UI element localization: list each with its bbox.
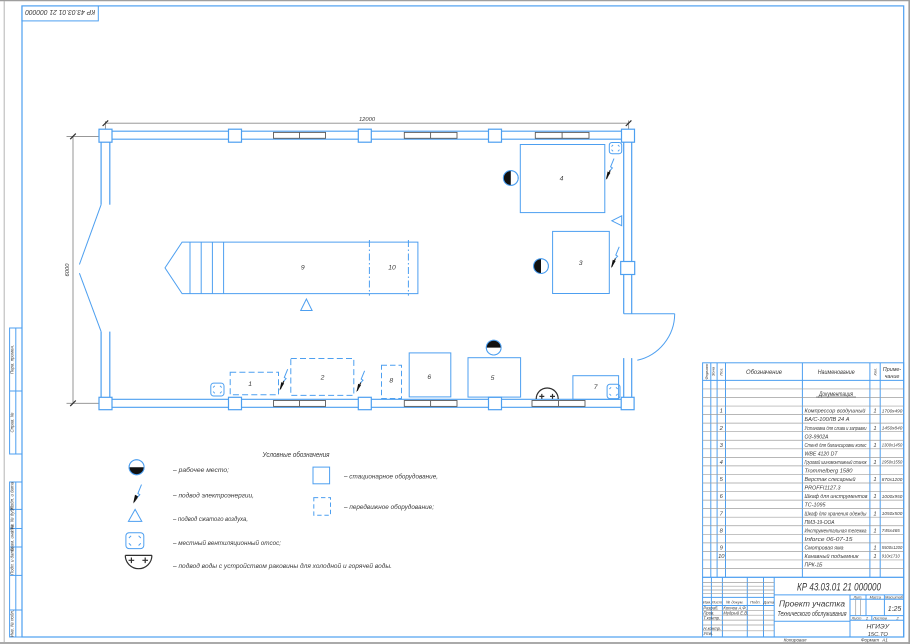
svg-text:10: 10 xyxy=(718,554,725,560)
svg-text:1: 1 xyxy=(873,554,876,560)
svg-text:Копировал: Копировал xyxy=(784,638,807,643)
svg-text:Справ. №: Справ. № xyxy=(10,412,15,432)
svg-text:Формат: Формат xyxy=(704,363,709,380)
svg-text:– подвод воды с устройством ра: – подвод воды с устройством раковины для… xyxy=(172,562,392,570)
svg-text:Канавный подъемник: Канавный подъемник xyxy=(805,553,859,560)
svg-text:КР 43.03.01 21 000000: КР 43.03.01 21 000000 xyxy=(24,8,95,17)
svg-text:Шкаф для инструментов: Шкаф для инструментов xyxy=(805,494,868,500)
svg-text:1: 1 xyxy=(873,409,876,415)
svg-text:КР 43.03.01 21 000000: КР 43.03.01 21 000000 xyxy=(797,582,881,594)
svg-text:Перв. примен.: Перв. примен. xyxy=(10,345,15,374)
svg-text:Инв. № подл.: Инв. № подл. xyxy=(10,610,15,637)
svg-text:Мудрый Е.В.: Мудрый Е.В. xyxy=(723,610,748,615)
svg-text:1: 1 xyxy=(873,528,876,534)
svg-text:Trommelberg 1580: Trommelberg 1580 xyxy=(805,469,854,475)
svg-text:Лист: Лист xyxy=(711,600,723,605)
svg-text:WBE 4120 DT: WBE 4120 DT xyxy=(805,451,838,457)
svg-text:1300х1450: 1300х1450 xyxy=(882,443,903,449)
svg-text:1: 1 xyxy=(873,511,876,517)
svg-text:Условные обозначения: Условные обозначения xyxy=(262,450,330,459)
svg-text:ПРК-1Б: ПРК-1Б xyxy=(805,563,823,569)
svg-text:10: 10 xyxy=(388,264,396,271)
svg-text:Компрессор воздушный: Компрессор воздушный xyxy=(805,408,867,415)
svg-text:9: 9 xyxy=(301,264,305,271)
svg-text:1: 1 xyxy=(873,443,876,449)
svg-text:Масса: Масса xyxy=(870,595,881,599)
svg-text:1: 1 xyxy=(873,426,876,432)
svg-text:4: 4 xyxy=(560,176,564,183)
svg-text:5: 5 xyxy=(491,375,495,382)
svg-text:Кол.: Кол. xyxy=(872,368,877,376)
svg-text:Подп. и дата: Подп. и дата xyxy=(10,547,15,575)
svg-text:– подвод сжатого воздуха,: – подвод сжатого воздуха, xyxy=(172,515,248,523)
svg-text:А1: А1 xyxy=(881,638,888,643)
svg-text:Верстак слесарный: Верстак слесарный xyxy=(805,476,857,483)
svg-text:Лит.: Лит. xyxy=(853,595,863,599)
svg-text:– подвод электроэнергии,: – подвод электроэнергии, xyxy=(172,491,254,499)
svg-text:Стенд для балансировки колес: Стенд для балансировки колес xyxy=(805,443,867,449)
svg-text:Формат: Формат xyxy=(861,638,879,643)
svg-text:– передвижное оборудование;: – передвижное оборудование; xyxy=(343,503,434,511)
svg-text:Изм.: Изм. xyxy=(703,600,712,605)
svg-text:Утв.: Утв. xyxy=(703,631,713,636)
svg-text:БА/С-100ЛВ 24 А: БА/С-100ЛВ 24 А xyxy=(805,417,850,423)
svg-text:ТС-1095: ТС-1095 xyxy=(805,503,827,509)
svg-text:Взам. инв. №: Взам. инв. № xyxy=(10,524,15,551)
svg-text:6000: 6000 xyxy=(65,263,71,277)
svg-text:1050х500: 1050х500 xyxy=(882,511,903,517)
svg-text:5500х1200: 5500х1200 xyxy=(882,545,903,551)
svg-text:1: 1 xyxy=(873,494,876,500)
svg-text:1: 1 xyxy=(873,546,876,552)
svg-text:1950х1550: 1950х1550 xyxy=(882,460,903,466)
svg-text:Грузовой шиномонтажный станок: Грузовой шиномонтажный станок xyxy=(805,459,867,466)
svg-text:Зона: Зона xyxy=(711,366,716,376)
svg-text:7: 7 xyxy=(594,384,598,391)
svg-text:Шкаф для хранения одежды: Шкаф для хранения одежды xyxy=(805,511,868,517)
svg-text:– рабочее место;: – рабочее место; xyxy=(172,466,229,474)
svg-text:НГИЭУ: НГИЭУ xyxy=(867,624,890,631)
svg-text:8: 8 xyxy=(389,378,393,385)
svg-text:Лист: Лист xyxy=(851,616,862,620)
svg-text:чание: чание xyxy=(885,374,900,380)
svg-text:Масштаб: Масштаб xyxy=(885,595,904,599)
svg-text:– стационарное оборудование,: – стационарное оборудование, xyxy=(343,472,438,480)
svg-text:Технического обслуживания: Технического обслуживания xyxy=(778,610,847,618)
svg-text:1: 1 xyxy=(248,381,252,388)
svg-text:1000х950: 1000х950 xyxy=(882,494,903,500)
svg-text:Листов: Листов xyxy=(872,616,887,620)
svg-text:Подп. и дата: Подп. и дата xyxy=(10,481,15,509)
svg-text:870х1200: 870х1200 xyxy=(882,477,903,483)
svg-text:Установка для слива и заправки: Установка для слива и заправки xyxy=(804,426,867,432)
svg-text:6: 6 xyxy=(427,374,431,381)
svg-text:745х465: 745х465 xyxy=(882,528,900,534)
svg-text:910х1710: 910х1710 xyxy=(882,554,900,560)
svg-text:PROFFI1127.3: PROFFI1127.3 xyxy=(805,486,842,492)
svg-text:Проект участка: Проект участка xyxy=(779,598,845,608)
svg-text:1450х840: 1450х840 xyxy=(882,426,903,432)
svg-text:1:25: 1:25 xyxy=(888,606,902,613)
svg-text:Подп.: Подп. xyxy=(750,600,761,605)
svg-text:Смотровая яма: Смотровая яма xyxy=(805,546,845,552)
svg-text:12000: 12000 xyxy=(359,117,376,123)
svg-text:– местный вентиляционный отсос: – местный вентиляционный отсос; xyxy=(172,539,281,547)
svg-text:Приме-: Приме- xyxy=(883,367,902,373)
svg-text:Т.контр.: Т.контр. xyxy=(703,615,720,620)
svg-text:Инструментальная тележка: Инструментальная тележка xyxy=(805,528,868,534)
svg-text:1: 1 xyxy=(873,460,876,466)
svg-text:2: 2 xyxy=(320,374,325,381)
svg-text:4: 4 xyxy=(720,460,723,466)
svg-text:Inforce 06-07-15: Inforce 06-07-15 xyxy=(805,537,854,543)
svg-text:Дата: Дата xyxy=(763,600,775,605)
svg-text:1: 1 xyxy=(720,409,723,415)
svg-text:ПМЗ-19-ООА: ПМЗ-19-ООА xyxy=(805,520,835,526)
svg-text:1: 1 xyxy=(873,477,876,483)
svg-text:Обозначение: Обозначение xyxy=(746,369,783,376)
svg-text:1700х490: 1700х490 xyxy=(882,408,903,414)
svg-text:№ докум.: № докум. xyxy=(726,600,744,605)
svg-text:3: 3 xyxy=(579,260,583,267)
svg-text:Поз.: Поз. xyxy=(719,368,724,376)
svg-text:Наименование: Наименование xyxy=(818,369,855,376)
svg-text:ОЗ-9902А: ОЗ-9902А xyxy=(805,434,829,440)
